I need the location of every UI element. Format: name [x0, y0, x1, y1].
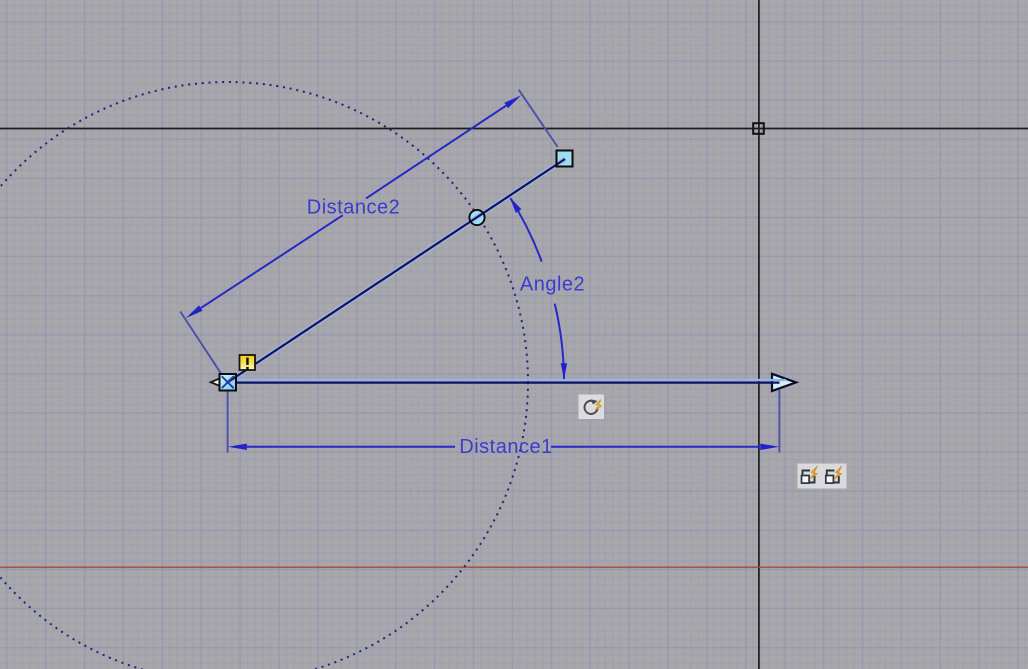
svg-text:Distance2: Distance2	[307, 197, 400, 219]
svg-text:Distance1: Distance1	[459, 436, 552, 458]
svg-text:Angle2: Angle2	[520, 274, 585, 296]
